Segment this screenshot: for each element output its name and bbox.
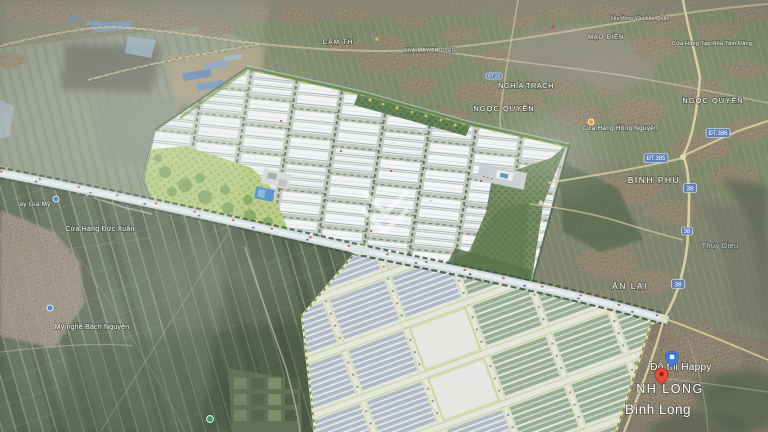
svg-text:Thuy Dieu: Thuy Dieu xyxy=(702,241,739,250)
svg-text:Bình Long: Bình Long xyxy=(625,402,691,417)
svg-text:ÂN LẠI: ÂN LẠI xyxy=(612,281,648,291)
svg-text:Mỹ nghề Bách Nguyên: Mỹ nghề Bách Nguyên xyxy=(55,322,130,331)
svg-text:Lều đồng Văn hậu Quân: Lều đồng Văn hậu Quân xyxy=(611,16,670,22)
svg-text:ĐT.386: ĐT.386 xyxy=(708,131,728,137)
svg-text:Cửa Hàng Đức Xuân: Cửa Hàng Đức Xuân xyxy=(65,225,134,233)
svg-text:ĐT.28: ĐT.28 xyxy=(488,74,500,79)
svg-text:NGHĨA TRẠCH: NGHĨA TRẠCH xyxy=(498,81,554,90)
svg-text:Cửa Hàng Hồng Nguyên: Cửa Hàng Hồng Nguyên xyxy=(582,123,658,132)
svg-text:NH LONG: NH LONG xyxy=(636,382,703,396)
svg-text:NGỌC QUYẾN: NGỌC QUYẾN xyxy=(682,95,743,105)
svg-text:ay Gia Mỹ: ay Gia Mỹ xyxy=(19,201,51,208)
svg-text:38: 38 xyxy=(686,185,694,192)
svg-text:38: 38 xyxy=(674,281,682,288)
svg-text:ĐT.385: ĐT.385 xyxy=(646,156,666,162)
svg-text:MẠO ĐIỀN: MẠO ĐIỀN xyxy=(588,34,624,41)
svg-text:BÌNH PHÚ: BÌNH PHÚ xyxy=(628,175,681,185)
svg-text:NGỌC QUYẾN: NGỌC QUYẾN xyxy=(473,103,534,113)
svg-text:CẨM TH: CẨM TH xyxy=(323,37,354,46)
svg-text:NHÀ MÁY TH UYÊN: NHÀ MÁY TH UYÊN xyxy=(404,46,456,54)
svg-text:Cửa Hàng Tạp Hóa Tâm Đăng: Cửa Hàng Tạp Hóa Tâm Đăng xyxy=(672,40,752,47)
svg-text:38: 38 xyxy=(684,229,691,235)
